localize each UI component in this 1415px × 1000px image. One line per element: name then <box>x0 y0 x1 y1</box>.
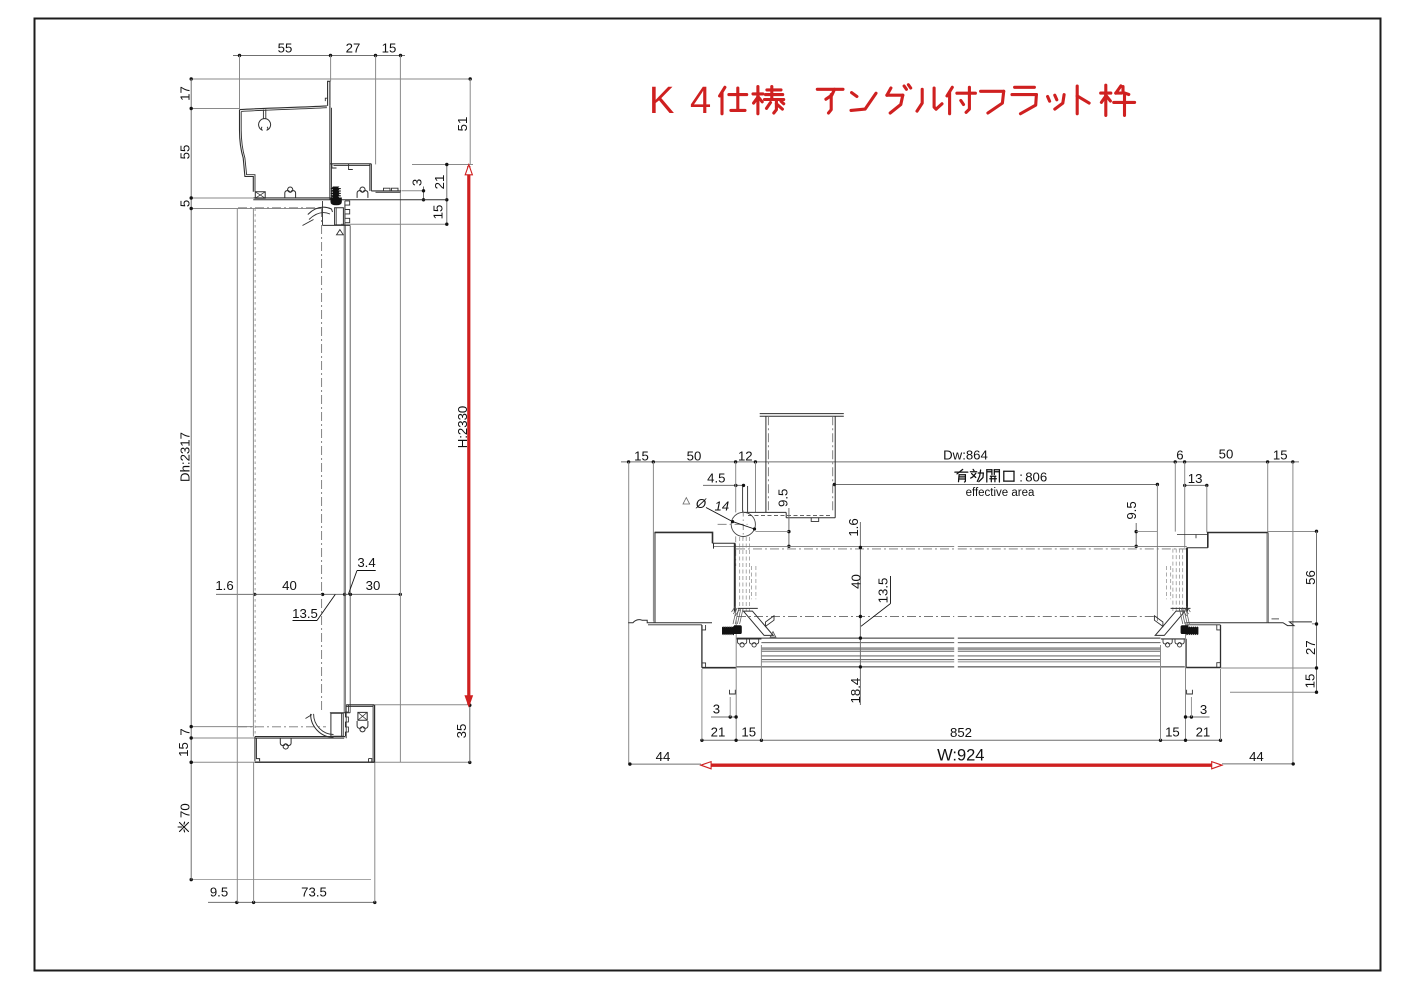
svg-text:4: 4 <box>690 80 711 122</box>
svg-text:12: 12 <box>738 448 753 463</box>
svg-text:6: 6 <box>1176 448 1183 463</box>
svg-text:18.4: 18.4 <box>848 678 863 704</box>
svg-text:Dh:2317: Dh:2317 <box>178 432 193 482</box>
svg-text:56: 56 <box>1303 570 1318 585</box>
svg-text:852: 852 <box>950 725 972 740</box>
svg-text:40: 40 <box>282 578 297 593</box>
svg-text:3.4: 3.4 <box>357 555 375 570</box>
svg-text:55: 55 <box>178 145 193 160</box>
svg-text:7: 7 <box>178 728 193 735</box>
svg-text:13.5: 13.5 <box>876 578 891 604</box>
svg-text:3: 3 <box>410 179 425 186</box>
svg-text:21: 21 <box>432 175 447 190</box>
svg-text:Dw:864: Dw:864 <box>943 448 988 463</box>
svg-text:9.5: 9.5 <box>210 885 228 900</box>
svg-text:27: 27 <box>346 41 361 56</box>
svg-text:13: 13 <box>1188 471 1203 486</box>
svg-text:44: 44 <box>1249 749 1264 764</box>
svg-text:51: 51 <box>455 117 470 132</box>
svg-text:15: 15 <box>1273 448 1288 463</box>
svg-text:9.5: 9.5 <box>1124 501 1139 519</box>
svg-text:4.5: 4.5 <box>707 471 725 486</box>
svg-text:H:2330: H:2330 <box>455 406 470 449</box>
svg-text:50: 50 <box>687 448 702 463</box>
svg-text:70: 70 <box>178 803 193 818</box>
svg-text:effective area: effective area <box>966 487 1035 499</box>
svg-text:13.5: 13.5 <box>292 606 318 621</box>
svg-text:17: 17 <box>178 86 193 101</box>
svg-text:9.5: 9.5 <box>776 489 791 507</box>
svg-text:15: 15 <box>176 742 191 757</box>
svg-text:15: 15 <box>431 205 446 220</box>
svg-text:5: 5 <box>178 200 193 207</box>
svg-text:K: K <box>649 80 674 122</box>
svg-text:27: 27 <box>1303 640 1318 655</box>
svg-text:15: 15 <box>1165 725 1180 740</box>
svg-text:15: 15 <box>382 41 397 56</box>
svg-text:3: 3 <box>1200 702 1207 717</box>
svg-text:35: 35 <box>454 724 469 739</box>
svg-text:44: 44 <box>656 749 671 764</box>
svg-text:73.5: 73.5 <box>301 885 327 900</box>
svg-text:1.6: 1.6 <box>215 578 233 593</box>
svg-text:55: 55 <box>278 41 293 56</box>
svg-text:Ø: Ø <box>695 496 707 511</box>
svg-text::: : <box>1019 470 1023 485</box>
svg-text:15: 15 <box>1303 674 1318 689</box>
svg-text:W:924: W:924 <box>937 747 984 765</box>
svg-text:40: 40 <box>849 574 864 589</box>
svg-text:3: 3 <box>713 702 720 717</box>
svg-text:15: 15 <box>634 448 649 463</box>
svg-text:21: 21 <box>711 725 726 740</box>
svg-text:1.6: 1.6 <box>846 518 861 536</box>
svg-text:50: 50 <box>1219 447 1234 462</box>
svg-text:15: 15 <box>741 725 756 740</box>
svg-text:806: 806 <box>1025 470 1047 485</box>
svg-text:30: 30 <box>366 578 381 593</box>
svg-text:14: 14 <box>715 499 730 514</box>
svg-text:21: 21 <box>1196 725 1211 740</box>
